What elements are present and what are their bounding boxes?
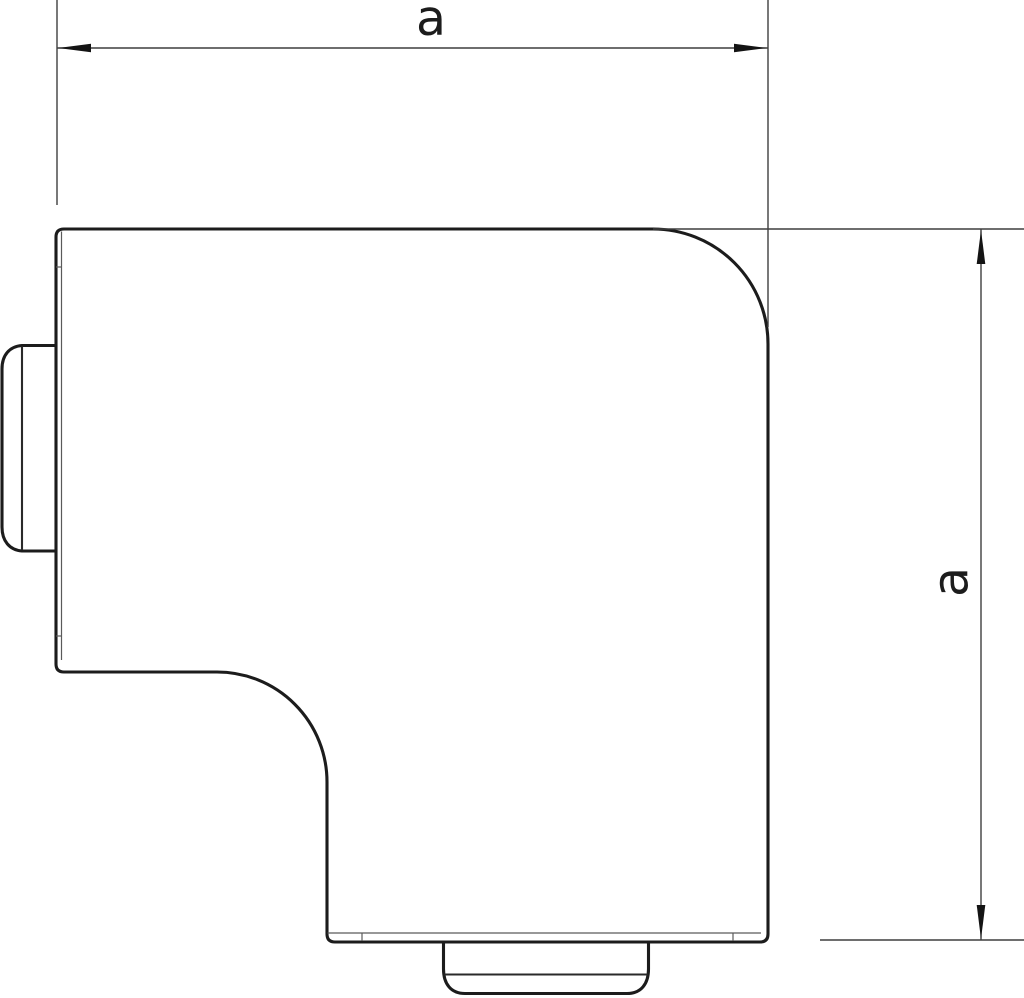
bottom-coupling-stub	[444, 942, 649, 994]
arrowhead-up-icon	[977, 230, 986, 264]
vertical-dimension-label: a	[923, 567, 980, 597]
part-body-outline	[56, 229, 768, 942]
flat-angle-elbow-drawing: a a	[0, 0, 1024, 998]
arrowhead-right-icon	[734, 44, 767, 53]
horizontal-dimension-label: a	[416, 0, 446, 47]
inner-edge-lines	[56, 232, 761, 942]
dimension-annotations: a a	[57, 0, 1024, 940]
part-outline-group	[2, 229, 768, 994]
arrowhead-left-icon	[58, 44, 91, 53]
left-coupling-stub	[2, 346, 56, 552]
technical-drawing-canvas: a a	[0, 0, 1024, 998]
arrowhead-down-icon	[977, 905, 986, 939]
